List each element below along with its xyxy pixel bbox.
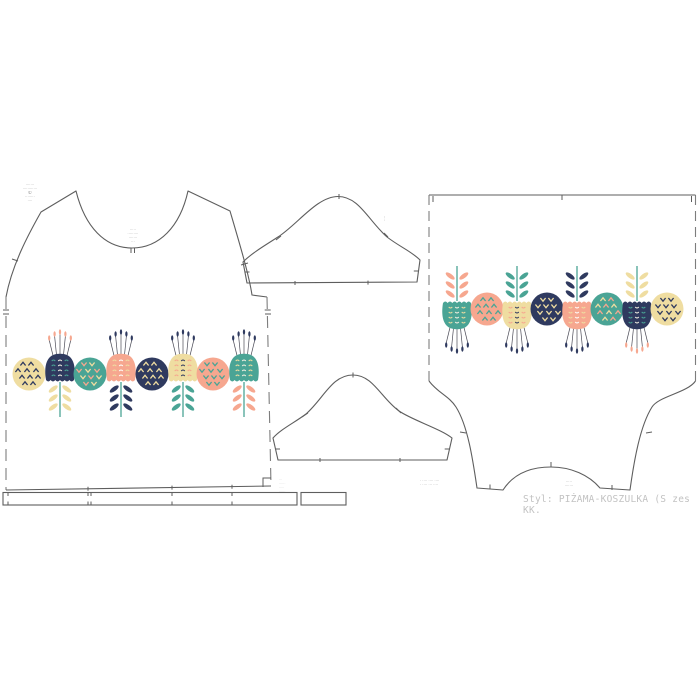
tulip-flower-motif bbox=[622, 266, 652, 354]
style-name-label: Styl: PIŻAMA-KOSZULKA (S zes KK. bbox=[523, 494, 700, 516]
back-outline-bottom bbox=[429, 381, 696, 490]
tulip-flower-motif bbox=[106, 329, 136, 417]
dot-flower-motif bbox=[197, 358, 230, 391]
tulip-flower-motif bbox=[442, 266, 472, 354]
dot-flower-motif bbox=[651, 293, 684, 326]
dot-flower-motif bbox=[13, 358, 46, 391]
dot-flower-motif bbox=[591, 293, 624, 326]
tulip-flower-motif bbox=[168, 329, 198, 417]
pattern-sheet-page: { "colors": { "background": "#ffffff", "… bbox=[0, 0, 700, 700]
front-flower-border-print bbox=[13, 329, 259, 417]
front-hem-note: ··· ······ ····· ······ bbox=[279, 478, 299, 494]
front-side-right-foldline bbox=[267, 297, 271, 486]
front-outline-top bbox=[6, 191, 267, 297]
sleeve-piece-top bbox=[243, 194, 420, 285]
note-line: · ···· ··· ···· bbox=[420, 483, 470, 487]
back-piece-info-note: · ···· ···· ···· · ···· ··· ···· bbox=[420, 479, 470, 487]
dot-flower-motif bbox=[136, 358, 169, 391]
note-line: ··· bbox=[112, 240, 154, 244]
tulip-flower-motif bbox=[229, 329, 259, 417]
tulip-flower-motif bbox=[562, 266, 592, 354]
dot-flower-motif bbox=[74, 358, 107, 391]
dot-flower-motif bbox=[531, 293, 564, 326]
binding-strips bbox=[3, 493, 346, 506]
front-hem-line bbox=[6, 486, 271, 490]
front-neckline-note: ····· ········· ······· ··· bbox=[112, 228, 154, 244]
sleeve-top-notch-ticks bbox=[245, 194, 419, 285]
tulip-flower-motif bbox=[45, 329, 75, 417]
binding-strip-short bbox=[301, 493, 346, 506]
sleeve-top-outline bbox=[243, 197, 420, 284]
front-piece-info-note: ······· ············ © ········ ···· bbox=[4, 183, 56, 203]
sleeve-size-label: ···· bbox=[382, 216, 386, 221]
dot-flower-motif bbox=[471, 293, 504, 326]
note-line: ······ bbox=[279, 490, 299, 494]
back-bodice-piece bbox=[429, 195, 696, 490]
sleeve-bottom-outline bbox=[273, 375, 452, 460]
note-line: ······· bbox=[552, 484, 586, 488]
tulip-flower-motif bbox=[502, 266, 532, 354]
back-flower-border-print bbox=[442, 266, 683, 354]
back-notch-ticks bbox=[433, 195, 692, 490]
note-line: ···· bbox=[4, 199, 56, 203]
sewing-pattern-sheet bbox=[0, 0, 700, 700]
binding-strip-long bbox=[3, 493, 297, 506]
back-neckline-note: ····· ······· bbox=[552, 480, 586, 488]
sleeve-piece-bottom bbox=[273, 373, 452, 463]
